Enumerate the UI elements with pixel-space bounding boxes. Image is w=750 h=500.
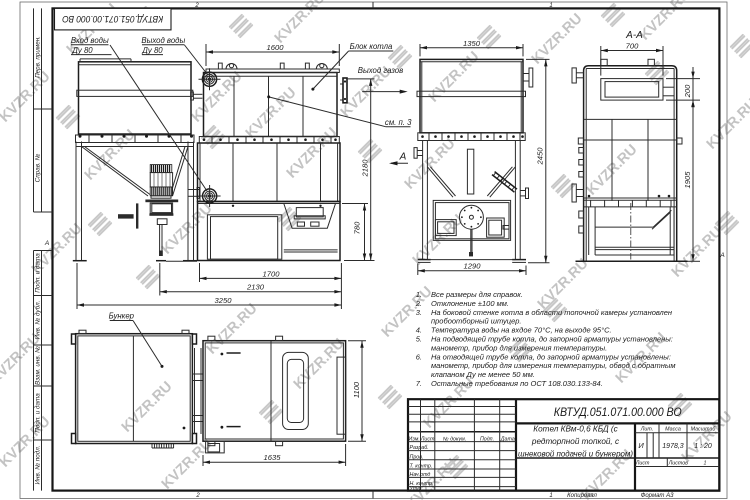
svg-text:пробоотборный штуцер.: пробоотборный штуцер.: [431, 317, 522, 326]
svg-text:700: 700: [626, 41, 639, 50]
svg-text:А: А: [44, 240, 49, 247]
svg-text:Справ. №: Справ. №: [35, 154, 42, 183]
svg-text:1.: 1.: [416, 290, 422, 299]
svg-text:Подп. и дата: Подп. и дата: [34, 253, 42, 293]
svg-text:Все размеры для справок.: Все размеры для справок.: [431, 290, 523, 299]
svg-text:4.: 4.: [416, 326, 422, 335]
svg-text:2.: 2.: [415, 299, 422, 308]
svg-text:Подп.: Подп.: [480, 436, 494, 442]
svg-text:Отклонение ±100 мм.: Отклонение ±100 мм.: [431, 299, 509, 308]
svg-text:редторпной топкой, с: редторпной топкой, с: [531, 437, 619, 446]
svg-text:Нач.отд: Нач.отд: [410, 472, 431, 478]
svg-text:Выход воды: Выход воды: [141, 36, 185, 45]
svg-text:Масштаб: Масштаб: [691, 426, 717, 432]
svg-text:2450: 2450: [536, 147, 545, 166]
svg-text:Бункер: Бункер: [109, 312, 135, 321]
svg-text:1905: 1905: [683, 171, 692, 189]
svg-text:А: А: [719, 252, 724, 259]
svg-text:№ докум.: № докум.: [443, 436, 466, 442]
svg-text:1: 1: [549, 3, 552, 9]
svg-text:Выход газов: Выход газов: [358, 66, 403, 75]
svg-text:1978,3: 1978,3: [662, 443, 684, 450]
svg-text:Инв. № дубл.: Инв. № дубл.: [34, 301, 42, 340]
svg-text:Блок котла: Блок котла: [350, 42, 393, 51]
svg-text:клапаном Ду не менее 50 мм.: клапаном Ду не менее 50 мм.: [431, 370, 535, 379]
svg-text:манометр, прибор для измерения: манометр, прибор для измерения температу…: [431, 361, 676, 370]
svg-text:Температура воды на вхдое 70°С: Температура воды на вхдое 70°С, на выход…: [431, 326, 612, 335]
svg-text:Копировал: Копировал: [567, 493, 597, 499]
svg-text:Пров.: Пров.: [410, 454, 424, 460]
svg-text:7.: 7.: [416, 379, 422, 388]
svg-text:шнековой подачей и бункером): шнековой подачей и бункером): [518, 450, 633, 459]
svg-text:Т. контр.: Т. контр.: [410, 464, 433, 470]
svg-text:Формат А3: Формат А3: [641, 493, 674, 499]
svg-text:Остальные требования по ОСТ 10: Остальные требования по ОСТ 108.030.133-…: [431, 379, 603, 388]
svg-text:2: 2: [195, 493, 200, 499]
svg-text:Ду 80: Ду 80: [71, 46, 93, 55]
svg-text:200: 200: [683, 84, 692, 98]
svg-text:Лист: Лист: [635, 461, 650, 467]
svg-text:Взам. инв. №: Взам. инв. №: [35, 346, 42, 385]
svg-text:На боковой стенке котла в обла: На боковой стенке котла в области топочн…: [431, 308, 672, 317]
svg-text:3.: 3.: [416, 308, 422, 317]
svg-text:5.: 5.: [416, 335, 422, 344]
svg-text:Разраб.: Разраб.: [410, 445, 429, 451]
svg-text:Дата: Дата: [500, 436, 515, 442]
svg-text:Подп. и дата: Подп. и дата: [34, 393, 42, 433]
svg-text:1 : 20: 1 : 20: [694, 443, 712, 450]
svg-text:2: 2: [194, 3, 199, 9]
svg-text:1100: 1100: [352, 381, 361, 398]
svg-text:1350: 1350: [463, 39, 481, 48]
svg-text:Лист: Лист: [420, 436, 435, 442]
svg-text:КВТУД.051.071.00.000 ВО: КВТУД.051.071.00.000 ВО: [554, 407, 682, 419]
svg-text:Изм.: Изм.: [409, 436, 420, 442]
svg-text:Котел КВм-0,6 КБД (с: Котел КВм-0,6 КБД (с: [533, 425, 618, 434]
svg-text:Лит.: Лит.: [640, 426, 653, 432]
svg-text:На подводящей трубе котла, до: На подводящей трубе котла, до запорной а…: [431, 335, 673, 344]
svg-text:манометр, прибор для измерения: манометр, прибор для измерения температу…: [431, 343, 607, 352]
svg-text:И: И: [638, 441, 644, 450]
svg-text:см. п. 3: см. п. 3: [385, 118, 412, 127]
svg-text:Инв. № подл.: Инв. № подл.: [34, 445, 42, 484]
svg-text:А-А: А-А: [625, 30, 643, 41]
svg-text:Вход воды: Вход воды: [71, 36, 109, 45]
svg-text:Масса: Масса: [665, 426, 681, 432]
svg-text:На отводящей трубе котла, до з: На отводящей трубе котла, до запорной ар…: [431, 352, 671, 361]
svg-text:1290: 1290: [464, 262, 482, 271]
svg-text:780: 780: [353, 221, 362, 234]
svg-text:1: 1: [704, 461, 707, 467]
svg-text:Ду 80: Ду 80: [141, 46, 163, 55]
svg-text:1635: 1635: [264, 453, 282, 462]
svg-text:1700: 1700: [263, 269, 281, 278]
svg-text:Листов: Листов: [668, 461, 689, 467]
svg-text:КВТУД.051.071.00.000 ВО: КВТУД.051.071.00.000 ВО: [62, 13, 164, 24]
svg-text:Утв.: Утв.: [410, 486, 422, 492]
svg-text:1600: 1600: [267, 43, 285, 52]
svg-text:3250: 3250: [215, 296, 233, 305]
svg-text:6.: 6.: [416, 352, 422, 361]
svg-text:2180: 2180: [361, 159, 370, 178]
svg-text:Перв. примен.: Перв. примен.: [35, 36, 42, 78]
svg-text:А: А: [399, 152, 407, 163]
svg-text:1: 1: [549, 493, 552, 499]
svg-text:2130: 2130: [246, 283, 265, 292]
